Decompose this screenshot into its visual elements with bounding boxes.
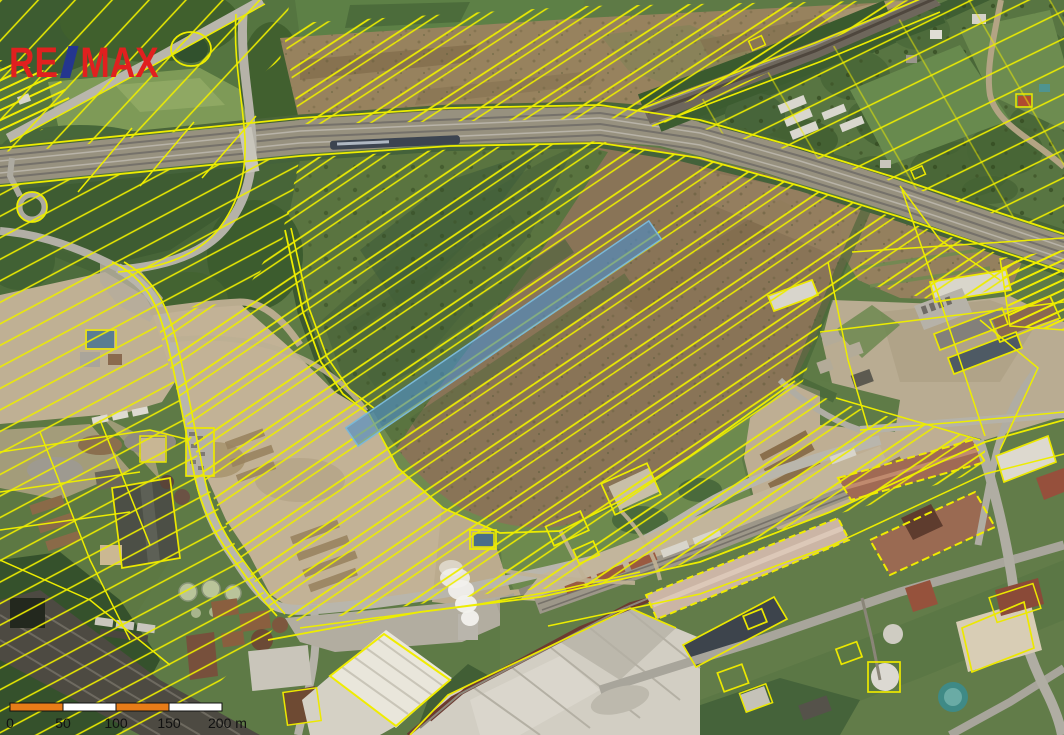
- svg-text:200 m: 200 m: [208, 715, 247, 731]
- svg-text:0: 0: [6, 715, 14, 731]
- svg-text:MAX: MAX: [80, 39, 158, 87]
- svg-text:150: 150: [157, 715, 181, 731]
- svg-text:RE: RE: [9, 39, 58, 87]
- svg-text:50: 50: [55, 715, 71, 731]
- svg-text:100: 100: [104, 715, 128, 731]
